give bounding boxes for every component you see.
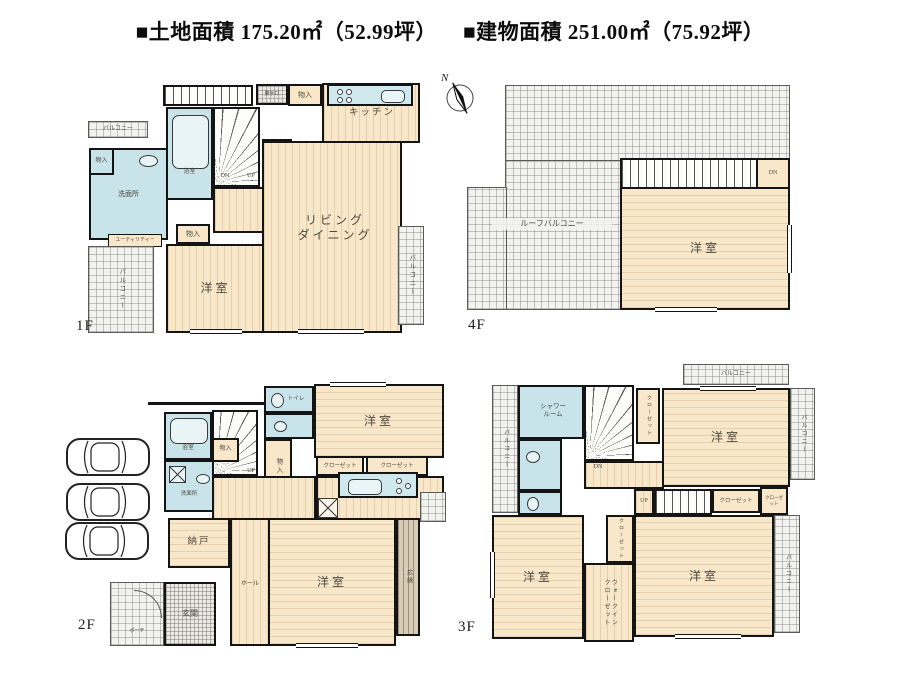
f1-bath-label: 浴室 xyxy=(168,168,211,177)
window xyxy=(787,225,792,273)
f4-bedroom-label: 洋室 xyxy=(690,241,720,255)
f3-walkin-closet-label: ウォークインクローゼット xyxy=(602,579,616,627)
f3-wic-label-line1: ウォークイン xyxy=(610,579,616,627)
f3-balcony-right-label: バルコニー xyxy=(799,414,806,454)
f2-hall-label: ホール xyxy=(232,580,268,589)
f3-toilet-room xyxy=(518,491,562,515)
compass-icon: N xyxy=(440,70,478,118)
f3-stairs-dn-label: DN xyxy=(588,463,608,472)
f2-bedroom-bottom-label: 洋室 xyxy=(317,575,347,589)
window xyxy=(190,329,242,334)
f1-storage-mid-label: 物入 xyxy=(186,230,200,238)
f3-balcony-top: バルコニー xyxy=(683,364,789,385)
washbasin xyxy=(139,155,158,167)
f4-roof-balcony-c xyxy=(467,187,507,310)
stove-burner-icon xyxy=(346,97,352,103)
f3-closet-mid: クローゼット xyxy=(606,515,634,563)
land-area-text: ■土地面積 175.20㎡（52.99坪） xyxy=(136,20,437,44)
f1-balcony-topleft: バルコニー xyxy=(88,121,148,138)
f3-shower-room-label: シャワー ルーム xyxy=(520,395,586,427)
f3-bedroom-bottomleft-label: 洋室 xyxy=(523,570,553,584)
f3-stairs-up-label: UP xyxy=(634,497,654,506)
f1-balcony-topleft-label: バルコニー xyxy=(103,126,133,133)
floor-label-3f: 3F xyxy=(458,619,476,636)
f2-vanity xyxy=(264,413,314,439)
f1-balcony-right-label: バルコニー xyxy=(407,254,415,297)
stove-burner-icon xyxy=(337,97,343,103)
f3-closet-small-label: クローゼット xyxy=(763,495,785,507)
car-icon xyxy=(64,481,152,523)
f1-storage-left-label: 物入 xyxy=(95,158,107,165)
f3-closet-vertical-label: クローゼット xyxy=(645,395,651,437)
f2-storeroom-label: 納戸 xyxy=(187,537,210,548)
floor-label-1f: 1F xyxy=(76,318,94,335)
f1-back-door-label: 勝手口 xyxy=(264,92,279,98)
car-icon xyxy=(63,520,151,562)
f1-kitchen-label: キッチン xyxy=(340,108,404,120)
area-summary: ■土地面積 175.20㎡（52.99坪）■建物面積 251.00㎡（75.92… xyxy=(0,16,900,46)
f3-balcony-left: バルコニー xyxy=(492,385,518,513)
window xyxy=(298,329,364,334)
f2-bath-label: 浴室 xyxy=(166,444,210,453)
f2-veranda-label: 広縁 xyxy=(404,569,411,585)
window xyxy=(700,386,756,391)
bathtub xyxy=(170,418,208,444)
f3-closet-bottom: クローゼット xyxy=(712,489,760,513)
f4-stairs-dn-label: DN xyxy=(769,170,778,177)
f4-roof-balcony-label: ルーフバルコニー xyxy=(492,218,612,230)
f3-balcony-right: バルコニー xyxy=(790,388,815,480)
f2-storage-stair-label: 物入 xyxy=(219,446,231,453)
f2-stairs-up-label: UP xyxy=(242,467,260,476)
f3-staircase-down xyxy=(584,385,634,461)
f2-bedroom-bottom: 洋室 xyxy=(268,518,396,646)
f3-closet-vertical: クローゼット xyxy=(636,388,660,444)
f1-balcony-bottomleft-label: バルコニー xyxy=(117,268,125,311)
f2-washroom xyxy=(164,460,214,512)
svg-text:N: N xyxy=(440,72,449,84)
f3-balcony-bottomright: バルコニー xyxy=(774,515,800,633)
f1-stairs-dn-label: DN xyxy=(216,172,234,181)
f1-kitchen-counter xyxy=(327,84,413,106)
f4-roof-balcony-a xyxy=(505,85,790,162)
f1-bedroom: 洋室 xyxy=(166,244,265,333)
f1-exterior-stairs xyxy=(163,85,253,106)
f2-toilet-label: トイレ xyxy=(288,396,305,403)
stove-burner-icon xyxy=(337,89,343,95)
stove-burner-icon xyxy=(346,89,352,95)
f1-storage-mid: 物入 xyxy=(176,224,210,244)
washing-machine xyxy=(169,466,186,483)
f2-kitchen-counter xyxy=(338,472,418,498)
stove-burner-icon xyxy=(396,488,402,494)
f3-balcony-bottomright-label: バルコニー xyxy=(783,554,790,594)
f3-bedroom-bottomright-label: 洋室 xyxy=(689,569,719,583)
window xyxy=(330,382,386,387)
f3-balcony-top-label: バルコニー xyxy=(721,371,751,378)
floor-label-2f: 2F xyxy=(78,617,96,634)
f2-veranda: 広縁 xyxy=(396,518,420,636)
building-area-text: ■建物面積 251.00㎡（75.92坪） xyxy=(463,20,764,44)
f1-storage-top-label: 物入 xyxy=(298,91,312,99)
f1-balcony-bottomleft: バルコニー xyxy=(88,246,154,333)
f1-washroom-label: 洗面所 xyxy=(118,190,139,198)
f4-roof-balcony-b xyxy=(505,160,621,310)
f2-bedroom-topright: 洋室 xyxy=(314,384,444,458)
f3-closet-bottom-label: クローゼット xyxy=(719,498,752,505)
f2-small-balcony xyxy=(420,492,446,522)
f3-walkin-closet: ウォークインクローゼット xyxy=(584,563,634,642)
f2-entrance-label: 玄関 xyxy=(182,609,198,619)
f2-bedroom-topright-label: 洋室 xyxy=(364,414,394,428)
appliance xyxy=(318,498,338,518)
stove-burner-icon xyxy=(405,483,411,489)
f1-living-dining-label: リビング ダイニング xyxy=(295,212,375,244)
toilet-bowl xyxy=(527,497,539,511)
f2-toilet-room: トイレ xyxy=(264,386,314,413)
f1-living-label-line1: リビング xyxy=(305,213,365,228)
f3-shower-label-line2: ルーム xyxy=(543,411,562,419)
window xyxy=(655,307,717,312)
f3-wic-label-line2: クローゼット xyxy=(603,579,609,627)
floorplan-page: ■土地面積 175.20㎡（52.99坪）■建物面積 251.00㎡（75.92… xyxy=(0,0,900,673)
f3-vanity xyxy=(518,439,562,491)
f1-living-label-line2: ダイニング xyxy=(297,228,372,243)
f1-balcony-right: バルコニー xyxy=(398,226,424,325)
f4-stairs-landing: DN xyxy=(756,158,790,189)
f3-closet-small: クローゼット xyxy=(760,487,788,515)
bathtub xyxy=(172,115,209,169)
f4-staircase xyxy=(620,158,758,189)
f1-storage-left: 物入 xyxy=(89,148,114,175)
kitchen-sink xyxy=(381,90,405,103)
kitchen-sink xyxy=(348,479,382,495)
f2-storage-stair: 物入 xyxy=(212,438,239,462)
washbasin xyxy=(526,451,540,463)
car-icon xyxy=(64,436,152,478)
f3-shower-label-line1: シャワー xyxy=(540,403,566,411)
floor-label-4f: 4F xyxy=(468,317,486,334)
f3-shower-room: シャワー ルーム xyxy=(518,385,584,439)
f2-storeroom: 納戸 xyxy=(168,518,230,568)
toilet-bowl xyxy=(271,393,284,408)
window xyxy=(675,634,741,639)
f3-bedroom-bottomleft: 洋室 xyxy=(492,515,584,639)
f3-staircase-up xyxy=(654,489,712,515)
f3-bedroom-topright: 洋室 xyxy=(662,388,790,487)
f1-utility-label: ユーティリティー xyxy=(115,238,154,244)
f2-washroom-label: 洗面所 xyxy=(166,490,212,499)
f1-stairs-up-label: UP xyxy=(242,172,260,181)
f2-closet-1-label: クローゼット xyxy=(323,463,356,470)
f1-bedroom-label: 洋室 xyxy=(200,281,230,295)
stove-burner-icon xyxy=(396,478,402,484)
f3-bedroom-bottomright: 洋室 xyxy=(634,515,774,637)
washbasin xyxy=(274,421,287,432)
f3-balcony-left-label: バルコニー xyxy=(501,429,508,469)
f1-storage-top: 物入 xyxy=(288,84,322,106)
f2-porch-label: ポーチ xyxy=(118,628,156,636)
f1-back-door: 勝手口 xyxy=(256,84,288,105)
f2-storage-vertical-label: 物入 xyxy=(274,458,282,475)
f3-closet-mid-label: クローゼット xyxy=(617,518,623,560)
f2-closet-2-label: クローゼット xyxy=(380,463,413,470)
f2-corridor xyxy=(212,476,316,520)
f1-bath xyxy=(166,107,213,200)
f3-bedroom-topright-label: 洋室 xyxy=(711,430,741,444)
window xyxy=(490,552,495,598)
f4-bedroom: 洋室 xyxy=(620,187,790,310)
window xyxy=(296,643,358,648)
f2-entrance: 玄関 xyxy=(164,582,216,646)
washbasin xyxy=(196,474,210,484)
